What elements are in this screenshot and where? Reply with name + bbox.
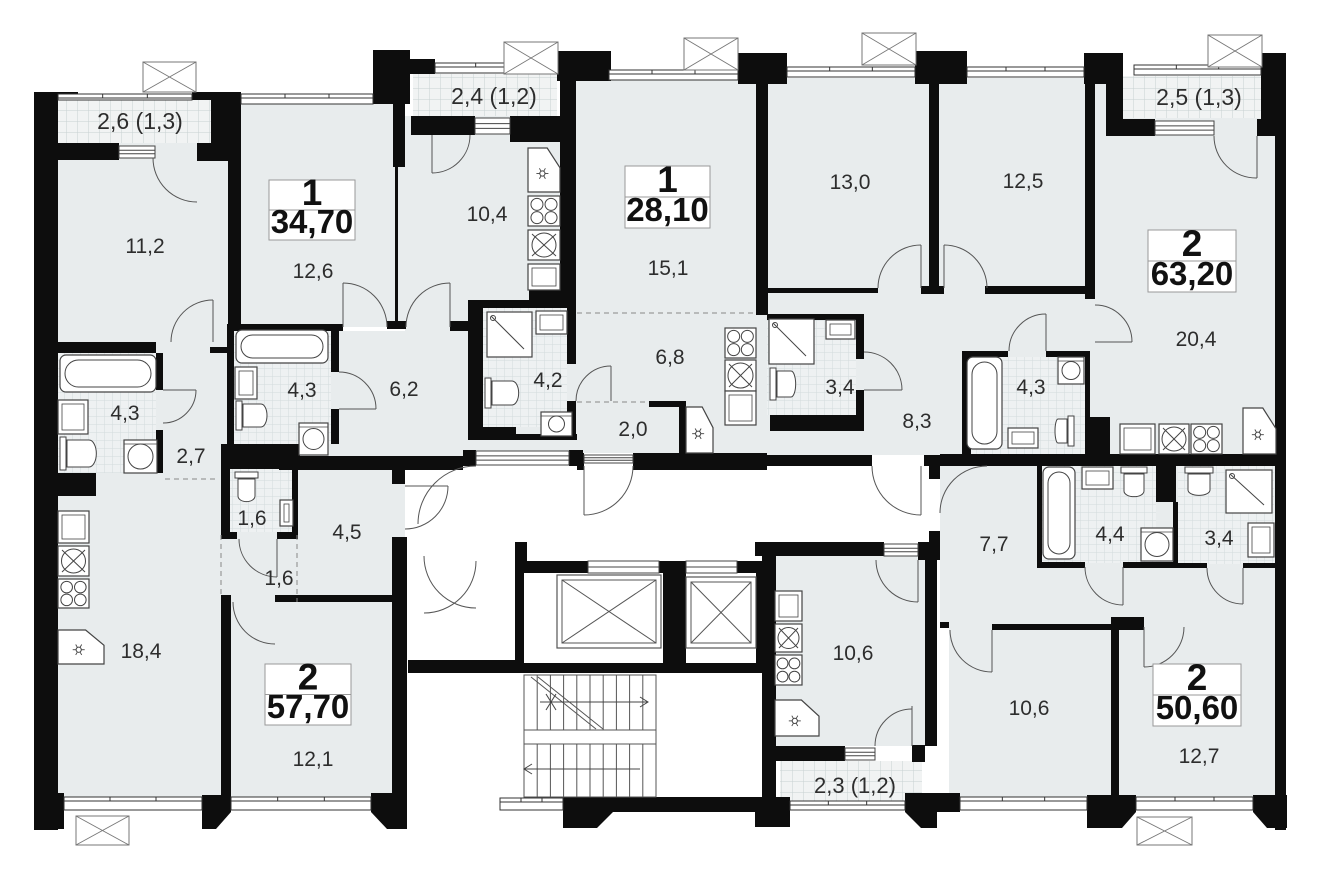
svg-text:2,6 (1,3): 2,6 (1,3)	[97, 108, 183, 134]
svg-text:4,5: 4,5	[332, 521, 361, 544]
svg-text:12,6: 12,6	[293, 260, 334, 283]
svg-text:15,1: 15,1	[648, 257, 689, 280]
svg-text:1,6: 1,6	[264, 567, 293, 590]
svg-text:18,4: 18,4	[121, 640, 162, 663]
svg-text:57,70: 57,70	[267, 688, 350, 725]
svg-text:2,7: 2,7	[176, 445, 205, 468]
svg-text:3,4: 3,4	[1204, 527, 1234, 550]
svg-text:28,10: 28,10	[626, 191, 709, 228]
svg-text:8,3: 8,3	[902, 410, 931, 433]
svg-text:4,2: 4,2	[533, 369, 562, 392]
svg-text:50,60: 50,60	[1156, 689, 1239, 726]
svg-text:6,8: 6,8	[655, 346, 684, 369]
svg-text:12,7: 12,7	[1179, 745, 1220, 768]
svg-text:12,5: 12,5	[1003, 170, 1044, 193]
svg-text:1,6: 1,6	[237, 507, 266, 530]
svg-text:2,4 (1,2): 2,4 (1,2)	[451, 83, 537, 109]
svg-text:4,3: 4,3	[1016, 376, 1045, 399]
svg-text:63,20: 63,20	[1151, 255, 1234, 292]
svg-text:10,6: 10,6	[833, 642, 874, 665]
svg-text:6,2: 6,2	[389, 378, 418, 401]
svg-text:2,5 (1,3): 2,5 (1,3)	[1156, 84, 1242, 110]
svg-text:11,2: 11,2	[125, 235, 164, 258]
svg-text:12,1: 12,1	[293, 748, 334, 771]
svg-text:10,4: 10,4	[467, 203, 508, 226]
svg-text:4,3: 4,3	[287, 379, 316, 402]
svg-text:7,7: 7,7	[979, 533, 1008, 556]
svg-text:4,3: 4,3	[110, 402, 139, 425]
svg-text:4,4: 4,4	[1095, 523, 1125, 546]
svg-text:3,4: 3,4	[825, 376, 855, 399]
svg-text:34,70: 34,70	[271, 203, 354, 240]
svg-text:20,4: 20,4	[1176, 328, 1217, 351]
svg-text:13,0: 13,0	[830, 171, 871, 194]
svg-text:10,6: 10,6	[1009, 697, 1050, 720]
svg-text:2,3 (1,2): 2,3 (1,2)	[814, 773, 896, 798]
svg-text:2,0: 2,0	[618, 418, 647, 441]
